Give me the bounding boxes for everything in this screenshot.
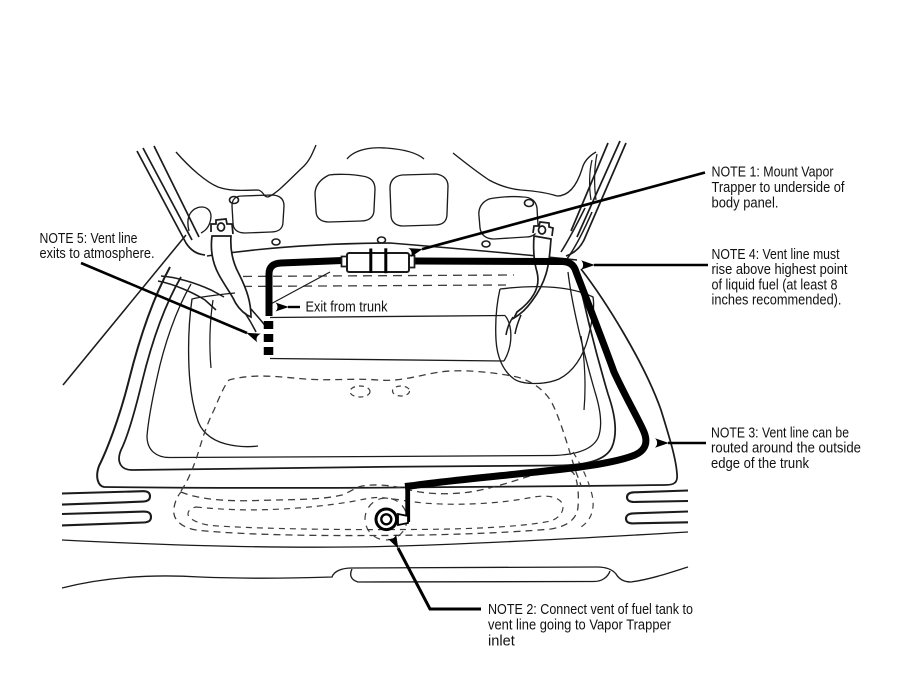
svg-text:Exit from trunk: Exit from trunk <box>306 299 389 315</box>
svg-text:NOTE 1: Mount Vapor: NOTE 1: Mount Vapor <box>712 164 834 180</box>
svg-text:rise above highest point: rise above highest point <box>712 262 848 278</box>
svg-text:NOTE 3: Vent line can be: NOTE 3: Vent line can be <box>711 426 849 442</box>
svg-text:inlet: inlet <box>488 633 515 649</box>
svg-text:NOTE 4: Vent line must: NOTE 4: Vent line must <box>712 247 840 263</box>
svg-text:NOTE 5: Vent line: NOTE 5: Vent line <box>40 231 138 247</box>
svg-text:Trapper to underside of: Trapper to underside of <box>712 180 846 196</box>
svg-text:routed around the outside: routed around the outside <box>711 441 861 457</box>
svg-text:inches recommended).: inches recommended). <box>712 293 842 309</box>
svg-text:vent line going to Vapor Trapp: vent line going to Vapor Trapper <box>488 618 671 634</box>
svg-text:NOTE 2: Connect vent of fuel t: NOTE 2: Connect vent of fuel tank to <box>488 602 693 618</box>
svg-text:exits to atmosphere.: exits to atmosphere. <box>40 246 155 262</box>
svg-text:body panel.: body panel. <box>712 195 779 211</box>
svg-text:edge of the trunk: edge of the trunk <box>711 456 810 472</box>
svg-text:of liquid fuel (at least 8: of liquid fuel (at least 8 <box>712 277 838 293</box>
